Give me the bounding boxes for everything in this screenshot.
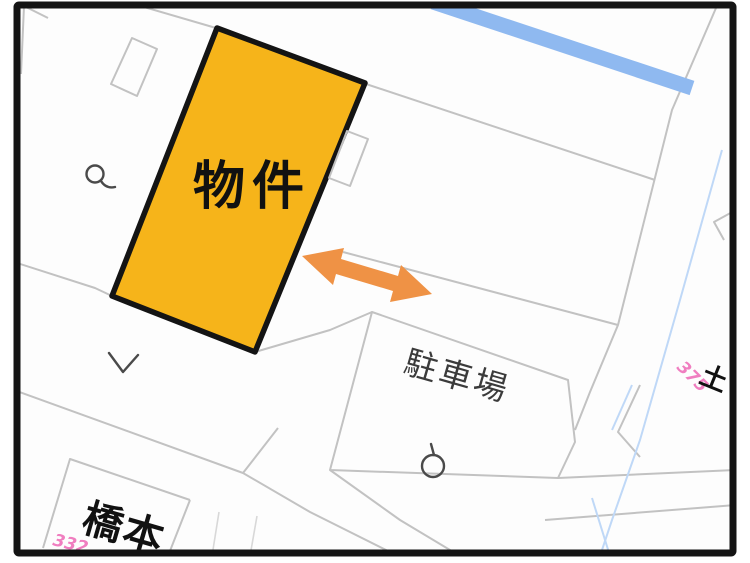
property-label: 物件: [193, 157, 311, 217]
cadastral-map: 332 375 土 駐車場 橋本 物件: [0, 0, 750, 563]
map-screenshot: 332 375 土 駐車場 橋本 物件: [0, 0, 750, 563]
